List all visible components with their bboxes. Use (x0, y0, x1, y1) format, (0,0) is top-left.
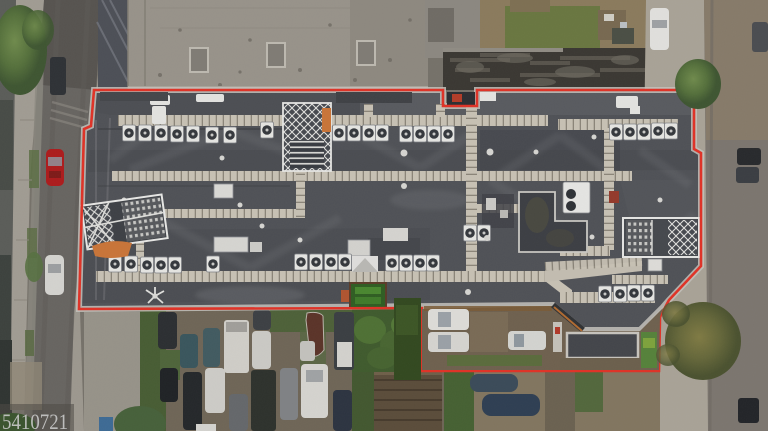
svg-text:5410721: 5410721 (2, 410, 68, 431)
